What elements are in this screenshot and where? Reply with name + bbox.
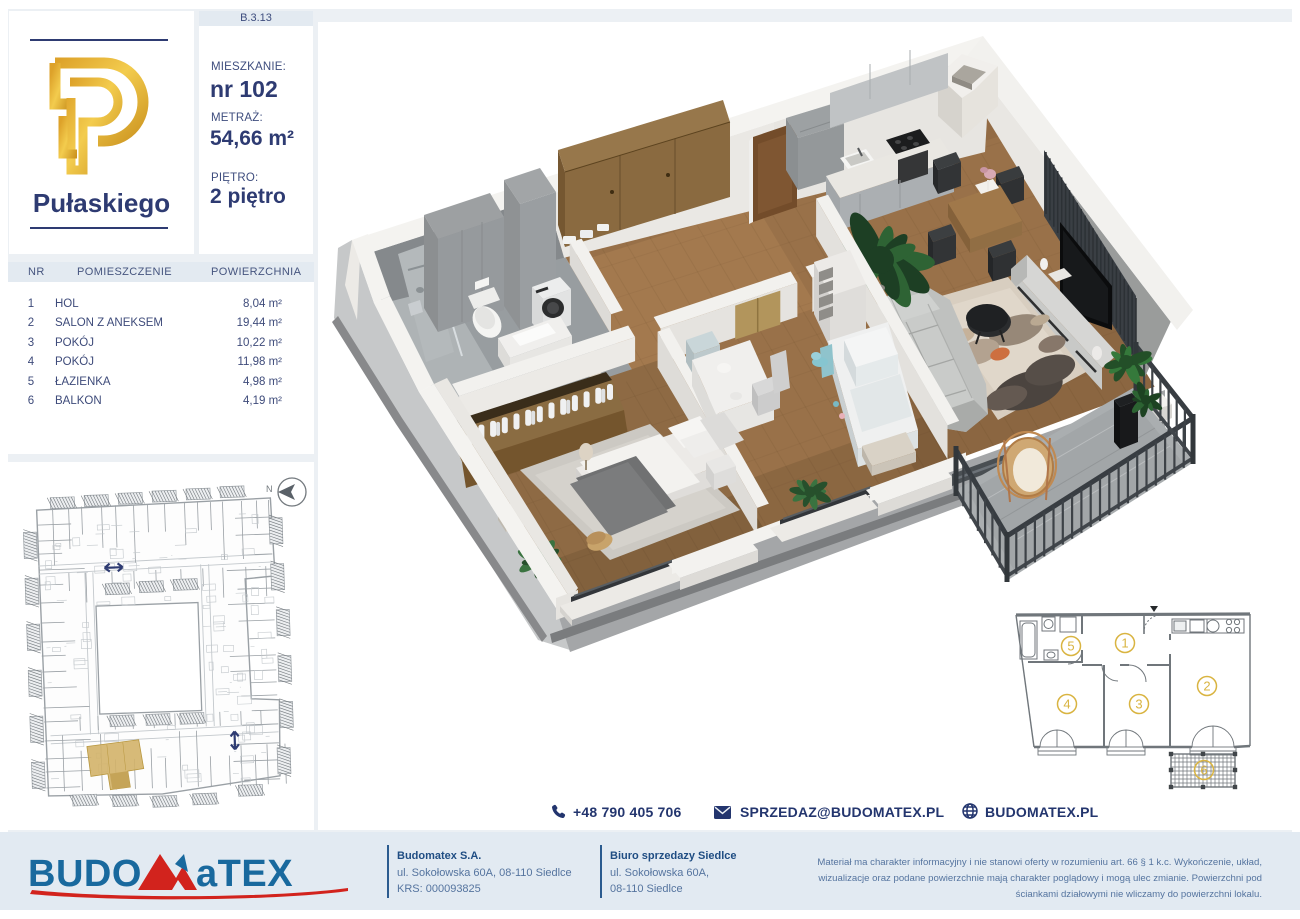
- svg-text:BUDO: BUDO: [28, 853, 142, 895]
- svg-text:6: 6: [1200, 763, 1207, 778]
- svg-text:1: 1: [1121, 636, 1128, 651]
- svg-text:5: 5: [1067, 639, 1074, 654]
- svg-text:3: 3: [1135, 697, 1142, 712]
- svg-text:N: N: [266, 484, 273, 494]
- svg-text:2: 2: [1203, 679, 1210, 694]
- svg-text:aTEX: aTEX: [196, 853, 293, 895]
- svg-text:4: 4: [1063, 697, 1070, 712]
